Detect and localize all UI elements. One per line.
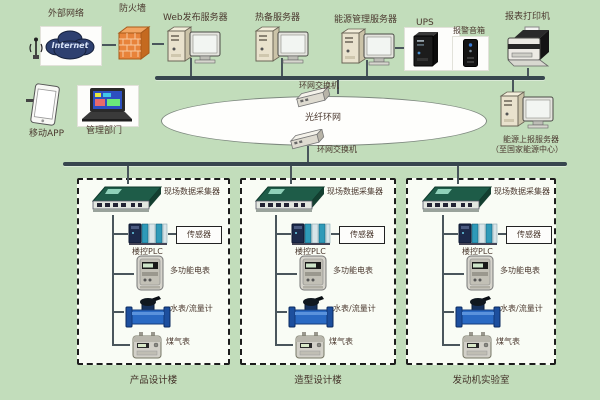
connector-trunk-plc: [275, 233, 291, 235]
connector-trunk-emeter: [275, 273, 297, 275]
internet-cloud-text: Internet: [42, 41, 98, 50]
building-name-label: 产品设计楼: [77, 372, 230, 386]
connector-plc-sensor: [498, 233, 506, 235]
connector-bus-collector: [290, 166, 292, 184]
gas-meter-icon: [130, 330, 164, 360]
gas-meter-label: 煤气表: [496, 338, 520, 347]
connector-plc-sensor: [331, 233, 339, 235]
connector-trunk-emeter: [112, 273, 134, 275]
external-network-label: 外部网络: [48, 10, 84, 20]
electric-meter-label: 多功能电表: [333, 267, 373, 276]
electric-meter-icon: [464, 254, 496, 292]
connector-trunk-gmeter: [442, 344, 460, 346]
connector-trunk-emeter: [442, 273, 464, 275]
report-printer-label: 报表打印机: [505, 13, 550, 23]
energy-mgmt-server-icon: [337, 26, 397, 72]
connector-trunk-wmeter: [275, 311, 287, 313]
connector-trunk-wmeter: [442, 311, 454, 313]
energy-mgmt-server-label: 能源管理服务器: [334, 16, 397, 26]
connector-bus-collector: [127, 166, 129, 184]
data-collector-label: 现场数据采集器: [164, 188, 220, 197]
gas-meter-icon: [460, 330, 494, 360]
gas-meter-label: 煤气表: [329, 338, 353, 347]
report-printer-icon: [501, 25, 558, 70]
water-meter-icon: [287, 294, 335, 330]
electric-meter-icon: [134, 254, 166, 292]
firewall-label: 防火墙: [119, 5, 146, 15]
ups-label: UPS: [416, 19, 434, 29]
mgmt-dept-laptop-icon: [80, 87, 134, 123]
connector-bus-collector: [457, 166, 459, 184]
standby-server-icon: [251, 24, 311, 70]
sensor-box: 传感器: [506, 226, 552, 244]
data-collector-label: 现场数据采集器: [327, 188, 383, 197]
plc-icon: [291, 221, 331, 247]
water-meter-icon: [454, 294, 502, 330]
ups-icon: [410, 30, 440, 68]
water-meter-icon: [124, 294, 172, 330]
mobile-app-label: 移动APP: [29, 130, 64, 140]
electric-meter-icon: [297, 254, 329, 292]
web-server-icon: [163, 24, 223, 70]
connector-trunk-gmeter: [275, 344, 293, 346]
water-meter-label: 水表/流量计: [170, 305, 213, 314]
alarm-speaker-label: 报警音箱: [453, 27, 485, 36]
plc-icon: [128, 221, 168, 247]
connector-trunk-plc: [442, 233, 458, 235]
electric-meter-label: 多功能电表: [500, 267, 540, 276]
web-server-label: Web发布服务器: [163, 14, 228, 24]
gas-meter-icon: [293, 330, 327, 360]
data-collector-icon: [254, 183, 326, 215]
gas-meter-label: 煤气表: [166, 338, 190, 347]
firewall-icon: [116, 24, 152, 62]
mgmt-dept-label: 管理部门: [86, 127, 122, 137]
standby-server-label: 热备服务器: [255, 14, 300, 24]
data-collector-icon: [421, 183, 493, 215]
plc-icon: [458, 221, 498, 247]
sensor-box: 传感器: [339, 226, 385, 244]
water-meter-label: 水表/流量计: [500, 305, 543, 314]
water-meter-label: 水表/流量计: [333, 305, 376, 314]
connector-trunk-wmeter: [112, 311, 124, 313]
data-collector-label: 现场数据采集器: [494, 188, 550, 197]
ring-switch-top-label: 环网交换机: [299, 82, 339, 91]
connector-trunk-gmeter: [112, 344, 130, 346]
sensor-box: 传感器: [176, 226, 222, 244]
connector-trunk-plc: [112, 233, 128, 235]
building-name-label: 造型设计楼: [240, 372, 396, 386]
bottom-network-bus: [63, 162, 567, 166]
building-name-label: 发动机实验室: [406, 372, 556, 386]
energy-report-server-sublabel: （至国家能源中心）: [491, 146, 563, 155]
alarm-speaker-icon: [462, 38, 479, 68]
data-collector-icon: [91, 183, 163, 215]
fiber-ring-label: 光纤环网: [293, 114, 353, 124]
top-network-bus: [155, 76, 545, 80]
ring-switch-bottom-label: 环网交换机: [317, 146, 357, 155]
electric-meter-label: 多功能电表: [170, 267, 210, 276]
energy-report-server-icon: [495, 89, 557, 135]
connector-plc-sensor: [168, 233, 176, 235]
network-topology-diagram: 光纤环网 环网交换机 环网交换机 外部网络 Internet 防火墙 Web发布…: [0, 0, 600, 400]
energy-report-server-label: 能源上报服务器: [503, 136, 559, 145]
mobile-app-icon: [25, 82, 62, 128]
